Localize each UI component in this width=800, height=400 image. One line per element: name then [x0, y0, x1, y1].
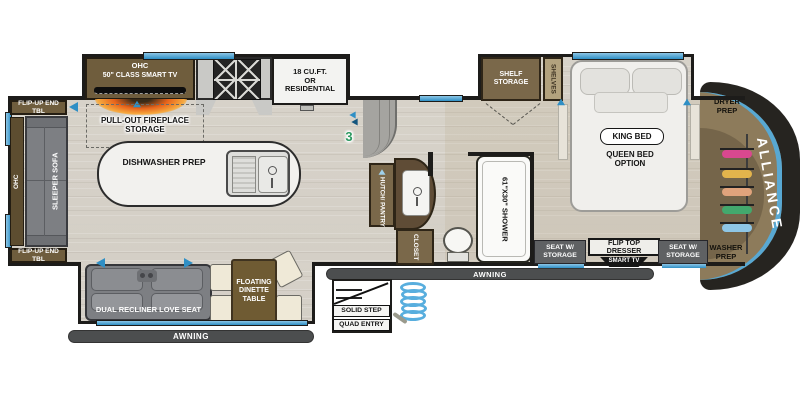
refrigerator: 18 CU.FT. OR RESIDENTIAL	[272, 57, 348, 105]
solid-step-label: SOLID STEP	[341, 307, 381, 315]
quad-entry-label: QUAD ENTRY	[339, 321, 384, 329]
bed: KING BED QUEEN BED OPTION	[570, 60, 688, 212]
shower: 61"x30" SHOWER	[476, 155, 532, 263]
pillow-icon	[632, 68, 682, 95]
hanger-shirt-icon	[722, 188, 752, 196]
shower-label: 61"x30" SHOWER	[478, 157, 530, 261]
kitchen-ohc-label: OHC	[87, 61, 193, 70]
vanity-sink-icon	[402, 170, 430, 216]
recliner-arrow-icon	[184, 258, 193, 268]
shelf-storage: SHELF STORAGE	[481, 57, 541, 101]
dual-recliner-loveseat: DUAL RECLINER LOVE SEAT	[85, 264, 212, 321]
flip-up-end-table-label: FLIP-UP END TBL	[12, 100, 65, 116]
window	[419, 95, 463, 102]
seat-with-storage-right: SEAT W/ STORAGE	[658, 240, 708, 264]
king-bed-label: KING BED	[612, 132, 651, 141]
nightstand	[558, 104, 568, 160]
hanger-shirt-icon	[722, 224, 752, 232]
solid-step-tag: SOLID STEP	[333, 305, 390, 317]
shelf-storage-label: SHELF STORAGE	[488, 71, 534, 88]
stair-curve	[365, 100, 380, 156]
dinette-label: FLOATING DINETTE TABLE	[234, 279, 274, 304]
awning-label: AWNING	[473, 270, 507, 279]
window	[662, 264, 706, 268]
loveseat-label: DUAL RECLINER LOVE SEAT	[87, 305, 210, 314]
toilet-icon	[443, 227, 473, 254]
flip-top-dresser: FLIP TOP DRESSER	[588, 238, 660, 256]
hutch-pantry-label: HUTCH/ PANTRY	[371, 177, 393, 227]
step-line	[336, 289, 362, 291]
bedroom-tv-label: SMART TV	[609, 258, 640, 265]
shelves: SHELVES	[543, 57, 563, 101]
closet-label: CLOSET	[398, 231, 432, 263]
hanger-shirt-icon	[722, 170, 752, 178]
flip-up-end-table-label: FLIP-UP END TBL	[12, 248, 65, 264]
hanger-shirt-icon	[722, 206, 752, 214]
bath-closet: CLOSET	[396, 229, 434, 265]
awning-bar-left: AWNING	[68, 330, 314, 343]
wall	[462, 96, 481, 100]
tv-icon	[94, 87, 186, 94]
cooktop-icon	[213, 59, 261, 100]
blanket-fold	[594, 92, 668, 113]
toilet-base	[447, 252, 469, 262]
bed-corner-icon	[557, 99, 565, 105]
recliner-back	[151, 268, 203, 291]
nightstand	[690, 104, 700, 160]
sink-drainboard	[232, 156, 256, 193]
seat-storage-label: SEAT W/ STORAGE	[662, 244, 704, 260]
fireplace-label: PULL-OUT FIREPLACE STORAGE	[90, 116, 200, 134]
dinette-chair	[276, 295, 302, 322]
dryer-prep-label: DRYER PREP	[706, 98, 748, 115]
rear-ohc-label: OHC	[11, 118, 23, 245]
sleeper-sofa: SLEEPER SOFA	[25, 116, 68, 247]
step-diagonal	[334, 282, 389, 305]
sink-icon	[226, 150, 290, 197]
hutch-pantry: HUTCH/ PANTRY	[369, 163, 395, 227]
flip-up-end-table-top: FLIP-UP END TBL	[10, 100, 67, 115]
window	[572, 52, 684, 60]
entry-chevron-icon	[351, 119, 357, 126]
slide-arrow-icon	[69, 102, 78, 112]
cupholder-icon	[148, 273, 153, 278]
dishwasher-prep-label: DISHWASHER PREP	[108, 158, 220, 168]
dresser-label: FLIP TOP DRESSER	[590, 239, 658, 256]
hutch-accent-icon	[379, 169, 386, 175]
wall	[691, 96, 745, 100]
kitchen-ohc-cabinet: OHC 50" CLASS SMART TV	[85, 57, 195, 100]
fridge-label-3: RESIDENTIAL	[285, 85, 335, 94]
queen-option-label: QUEEN BED OPTION	[594, 150, 666, 168]
sleeper-sofa-label: SLEEPER SOFA	[45, 118, 65, 245]
flip-up-end-table-bottom: FLIP-UP END TBL	[10, 248, 67, 263]
bath-wall	[428, 152, 433, 176]
king-bed-tag: KING BED	[600, 128, 664, 145]
tv-label: 50" CLASS SMART TV	[87, 72, 193, 80]
awning-label: AWNING	[173, 332, 209, 342]
shelves-label: SHELVES	[545, 59, 561, 99]
window	[538, 264, 584, 268]
seat-storage-label: SEAT W/ STORAGE	[539, 244, 581, 260]
recliner-back	[91, 268, 143, 291]
seat-with-storage-left: SEAT W/ STORAGE	[534, 240, 586, 264]
rear-ohc: OHC	[10, 117, 24, 246]
floorplan: DRYER PREP WASHER PREP ALLIANCE FLIP-UP …	[0, 0, 800, 400]
window	[96, 320, 308, 326]
washer-prep-label: WASHER PREP	[702, 244, 750, 261]
faucet-icon	[268, 166, 277, 175]
faucet-stem	[271, 178, 273, 188]
pillow-icon	[580, 68, 630, 95]
bed-corner-icon	[683, 99, 691, 105]
window	[143, 52, 235, 60]
hanger-shirt-icon	[722, 150, 752, 158]
quad-entry-tag: QUAD ENTRY	[333, 319, 390, 331]
faucet-stem	[416, 197, 418, 206]
cupholder-icon	[140, 273, 145, 278]
bath-wall	[468, 152, 534, 156]
dinette-table: FLOATING DINETTE TABLE	[231, 259, 277, 324]
recliner-arrow-icon	[96, 258, 105, 268]
fridge-handle	[300, 105, 314, 111]
step-count-label: 3	[342, 130, 356, 145]
faucet-icon	[413, 187, 422, 196]
entry-chevron-icon	[349, 112, 355, 119]
